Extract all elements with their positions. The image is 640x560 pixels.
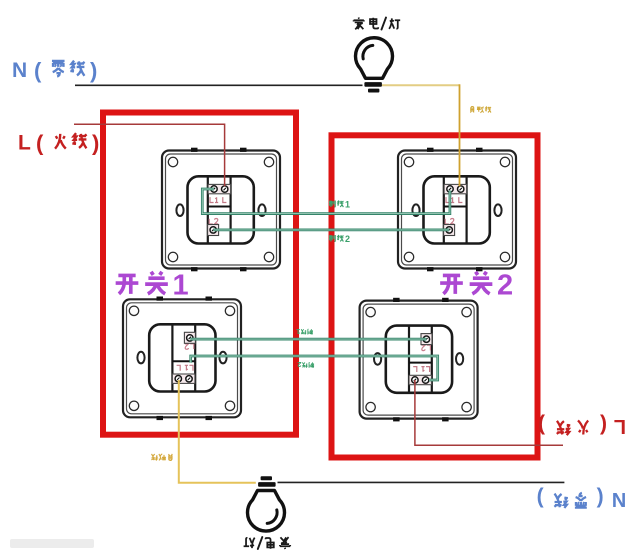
svg-text:1: 1 xyxy=(345,200,350,210)
svg-text:2: 2 xyxy=(497,270,513,302)
svg-text:N: N xyxy=(12,59,27,82)
svg-text:L: L xyxy=(614,415,626,437)
svg-text:2: 2 xyxy=(345,234,350,244)
svg-text:(: ( xyxy=(34,58,42,83)
svg-text:2: 2 xyxy=(297,360,301,369)
svg-text:(: ( xyxy=(597,487,604,510)
svg-text:(: ( xyxy=(600,414,607,437)
svg-text:1: 1 xyxy=(296,327,300,336)
svg-text:1: 1 xyxy=(173,270,189,302)
svg-text:): ) xyxy=(538,414,545,437)
svg-text:): ) xyxy=(90,58,97,83)
svg-text:N: N xyxy=(612,488,626,510)
svg-text:): ) xyxy=(537,487,544,510)
svg-text:L: L xyxy=(18,132,31,155)
svg-text:(: ( xyxy=(36,131,44,156)
svg-text:): ) xyxy=(92,131,99,156)
